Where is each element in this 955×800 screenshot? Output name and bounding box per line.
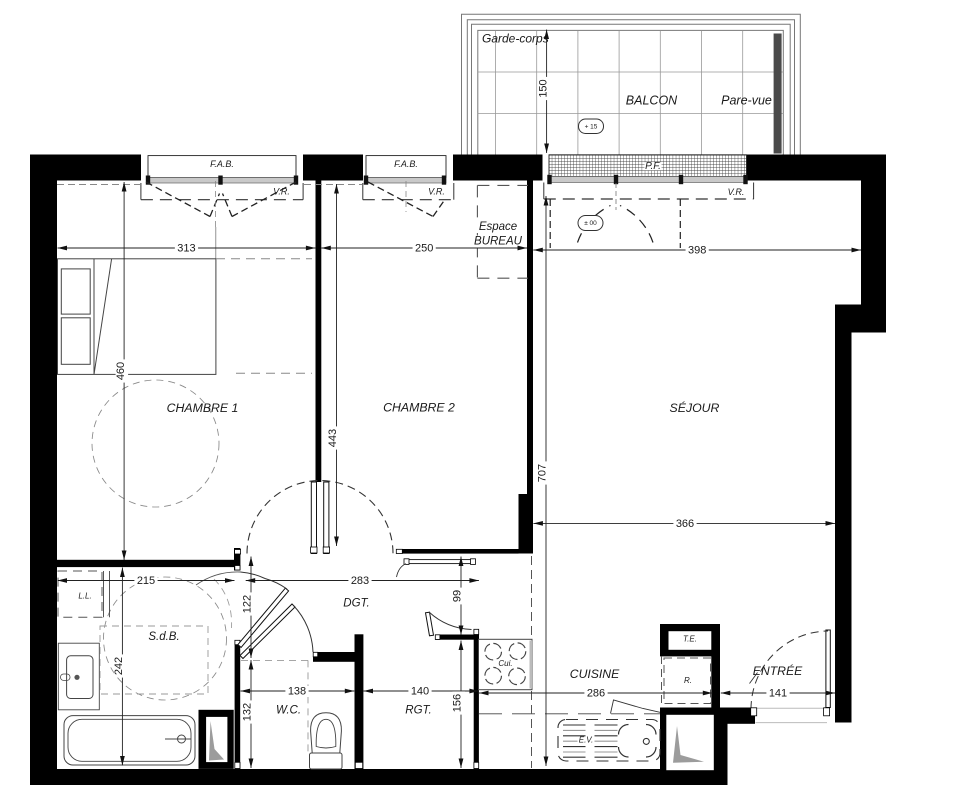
svg-text:F.A.B.: F.A.B.: [210, 159, 234, 169]
svg-text:RGT.: RGT.: [405, 705, 431, 717]
svg-text:R.: R.: [684, 676, 692, 685]
svg-text:+ 15: + 15: [585, 123, 598, 130]
svg-text:W.C.: W.C.: [276, 705, 301, 717]
svg-text:F.A.B.: F.A.B.: [394, 159, 418, 169]
svg-text:707: 707: [537, 464, 549, 482]
svg-text:CHAMBRE 2: CHAMBRE 2: [383, 400, 455, 414]
svg-text:286: 286: [587, 687, 605, 699]
svg-text:SÉJOUR: SÉJOUR: [670, 400, 720, 415]
svg-text:150: 150: [537, 79, 549, 97]
svg-text:BUREAU: BUREAU: [474, 236, 523, 248]
svg-text:443: 443: [327, 429, 339, 447]
svg-text:215: 215: [137, 575, 155, 587]
svg-text:132: 132: [242, 703, 254, 721]
svg-text:V.R.: V.R.: [428, 186, 445, 196]
svg-text:313: 313: [177, 242, 195, 254]
svg-text:P.F.: P.F.: [645, 161, 661, 172]
svg-text:L.L.: L.L.: [78, 592, 91, 601]
svg-text:283: 283: [351, 575, 369, 587]
svg-text:366: 366: [676, 518, 694, 530]
svg-text:138: 138: [288, 685, 306, 697]
svg-text:S.d.B.: S.d.B.: [148, 631, 179, 643]
svg-text:T.E.: T.E.: [683, 634, 697, 643]
svg-text:BALCON: BALCON: [626, 93, 678, 107]
svg-text:122: 122: [242, 595, 254, 613]
svg-text:140: 140: [411, 685, 429, 697]
svg-text:CHAMBRE 1: CHAMBRE 1: [167, 401, 239, 415]
svg-text:Cui.: Cui.: [498, 659, 512, 668]
svg-text:156: 156: [452, 694, 464, 712]
svg-text:V.R.: V.R.: [728, 187, 745, 197]
svg-text:DGT.: DGT.: [343, 598, 369, 610]
svg-text:V.R.: V.R.: [273, 186, 290, 196]
svg-text:± 00: ± 00: [584, 220, 597, 227]
svg-text:141: 141: [769, 687, 787, 699]
svg-text:250: 250: [415, 242, 433, 254]
svg-text:E.V.: E.V.: [579, 736, 594, 745]
svg-text:CUISINE: CUISINE: [570, 667, 620, 681]
svg-text:460: 460: [115, 362, 127, 380]
svg-text:Espace: Espace: [479, 221, 517, 233]
svg-text:Garde-corps: Garde-corps: [482, 32, 549, 46]
svg-text:398: 398: [688, 244, 706, 256]
svg-text:99: 99: [452, 590, 464, 602]
svg-text:ENTRÉE: ENTRÉE: [753, 663, 803, 678]
svg-text:Pare-vue: Pare-vue: [721, 93, 772, 107]
svg-text:242: 242: [113, 657, 125, 675]
